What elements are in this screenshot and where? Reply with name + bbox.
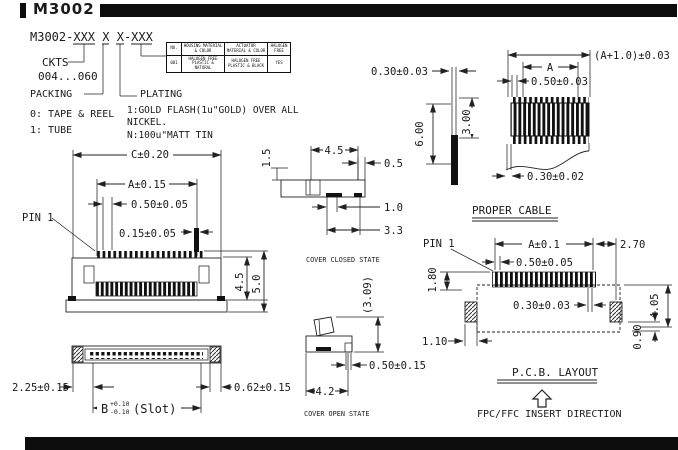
pcb-dim-pitch: 0.50±0.05 xyxy=(516,257,573,269)
pcb-dim-anchor-w: 1.10 xyxy=(422,336,447,348)
front-dim-pitch: 0.50±0.05 xyxy=(131,199,188,211)
cover-closed-dim-top: 4.5 xyxy=(325,145,344,157)
pcb-dim-pad-len: 1.80 xyxy=(427,267,439,292)
pcb-dim-pad-w: 0.30±0.03 xyxy=(513,300,570,312)
bottom-contact-row xyxy=(90,352,203,359)
proper-cable-dim-total: (A+1.0)±0.03 xyxy=(594,50,670,62)
front-dim-body-height: 4.5 xyxy=(234,273,246,292)
pcb-dim-pad-h: 0.90 xyxy=(632,324,644,349)
pcb-pin1-leader xyxy=(451,249,493,271)
front-dim-pin-width: 0.15±0.05 xyxy=(119,228,176,240)
pcb-dim-edge: 2.70 xyxy=(620,239,645,251)
drawing-canvas: C±0.20 A±0.15 0.50±0.05 0.15±0.05 PIN 1 … xyxy=(0,0,678,450)
bottom-dim-end: 2.25±0.15 xyxy=(12,382,69,394)
bottom-dim-slot-suffix: (Slot) xyxy=(133,402,176,416)
proper-cable-view: A (A+1.0)±0.03 0.50±0.03 0.30±0.02 PROPE… xyxy=(472,50,670,221)
cover-open-lever xyxy=(314,317,334,336)
cable-conductor-block xyxy=(511,103,589,136)
pin1-contact-mark xyxy=(194,228,199,252)
cable-dim-length: 6.00 xyxy=(414,121,426,146)
cover-closed-dim-r3: 3.3 xyxy=(384,225,403,237)
bottom-dim-slot-plus: +0.10 xyxy=(110,400,130,408)
cover-closed-body xyxy=(281,180,365,197)
pcb-anchor-pad-left xyxy=(465,302,477,322)
front-view: C±0.20 A±0.15 0.50±0.05 0.15±0.05 PIN 1 … xyxy=(22,148,268,312)
datasheet-page: M3002 M3002-XXX X X-XXX CKTS 004...060 P… xyxy=(0,0,678,450)
cable-dim-exposed: 3.00 xyxy=(461,109,473,134)
cover-open-view: (3.09) 0.50±0.15 4.2 COVER OPEN STATE xyxy=(304,276,426,418)
cable-dim-thickness: 0.30±0.03 xyxy=(371,66,428,78)
pcb-dim-span: 4.05 xyxy=(649,293,661,318)
cover-open-dim-tail: 0.50±0.15 xyxy=(369,360,426,372)
pcb-dim-a: A±0.1 xyxy=(528,239,560,251)
part-number-leader-lines xyxy=(68,44,166,96)
cover-closed-view: 1.5 4.5 0.5 1.0 3.3 COVER CLOSED STATE xyxy=(261,144,403,264)
insert-direction-arrow-icon xyxy=(533,390,551,407)
cover-open-title: COVER OPEN STATE xyxy=(304,410,369,418)
connector-base xyxy=(66,300,227,312)
bottom-dim-tab: 0.62±0.15 xyxy=(234,382,291,394)
proper-cable-dim-a: A xyxy=(547,62,554,74)
bottom-view: 2.25±0.15 0.62±0.15 B +0.10 -0.10 (Slot) xyxy=(12,346,291,416)
cover-open-dim-height: (3.09) xyxy=(362,276,374,314)
cover-closed-dim-r1: 0.5 xyxy=(384,158,403,170)
front-dim-total-width: C±0.20 xyxy=(131,149,169,161)
pcb-anchor-pad-right xyxy=(610,302,622,322)
bottom-dim-slot-minus: -0.10 xyxy=(110,408,130,416)
cover-closed-dim-left: 1.5 xyxy=(261,149,273,168)
proper-cable-title: PROPER CABLE xyxy=(472,204,551,217)
cover-closed-dim-r2: 1.0 xyxy=(384,202,403,214)
proper-cable-dim-conductor: 0.30±0.02 xyxy=(527,171,584,183)
pcb-layout-view: PIN 1 A±0.1 2.70 0.50±0.05 1.80 0.30±0.0… xyxy=(422,237,672,420)
insert-direction-note: FPC/FFC INSERT DIRECTION xyxy=(477,409,622,420)
contact-teeth-row xyxy=(95,251,203,258)
pcb-pad-row xyxy=(492,272,596,287)
proper-cable-dim-pitch: 0.50±0.03 xyxy=(531,76,588,88)
front-pin1-label: PIN 1 xyxy=(22,212,54,224)
contact-comb xyxy=(96,282,197,296)
cable-break-line xyxy=(506,151,589,170)
pcb-pin1-label: PIN 1 xyxy=(423,238,455,250)
cable-stiffener xyxy=(451,135,458,185)
bottom-dim-slot-letter: B xyxy=(101,402,108,416)
front-dim-total-height: 5.0 xyxy=(251,275,263,294)
pcb-layout-title: P.C.B. LAYOUT xyxy=(512,366,598,379)
front-dim-a-width: A±0.15 xyxy=(128,179,166,191)
cover-open-dim-depth: 4.2 xyxy=(316,386,335,398)
cover-closed-title: COVER CLOSED STATE xyxy=(306,256,380,264)
pin1-leader-line xyxy=(52,218,95,251)
